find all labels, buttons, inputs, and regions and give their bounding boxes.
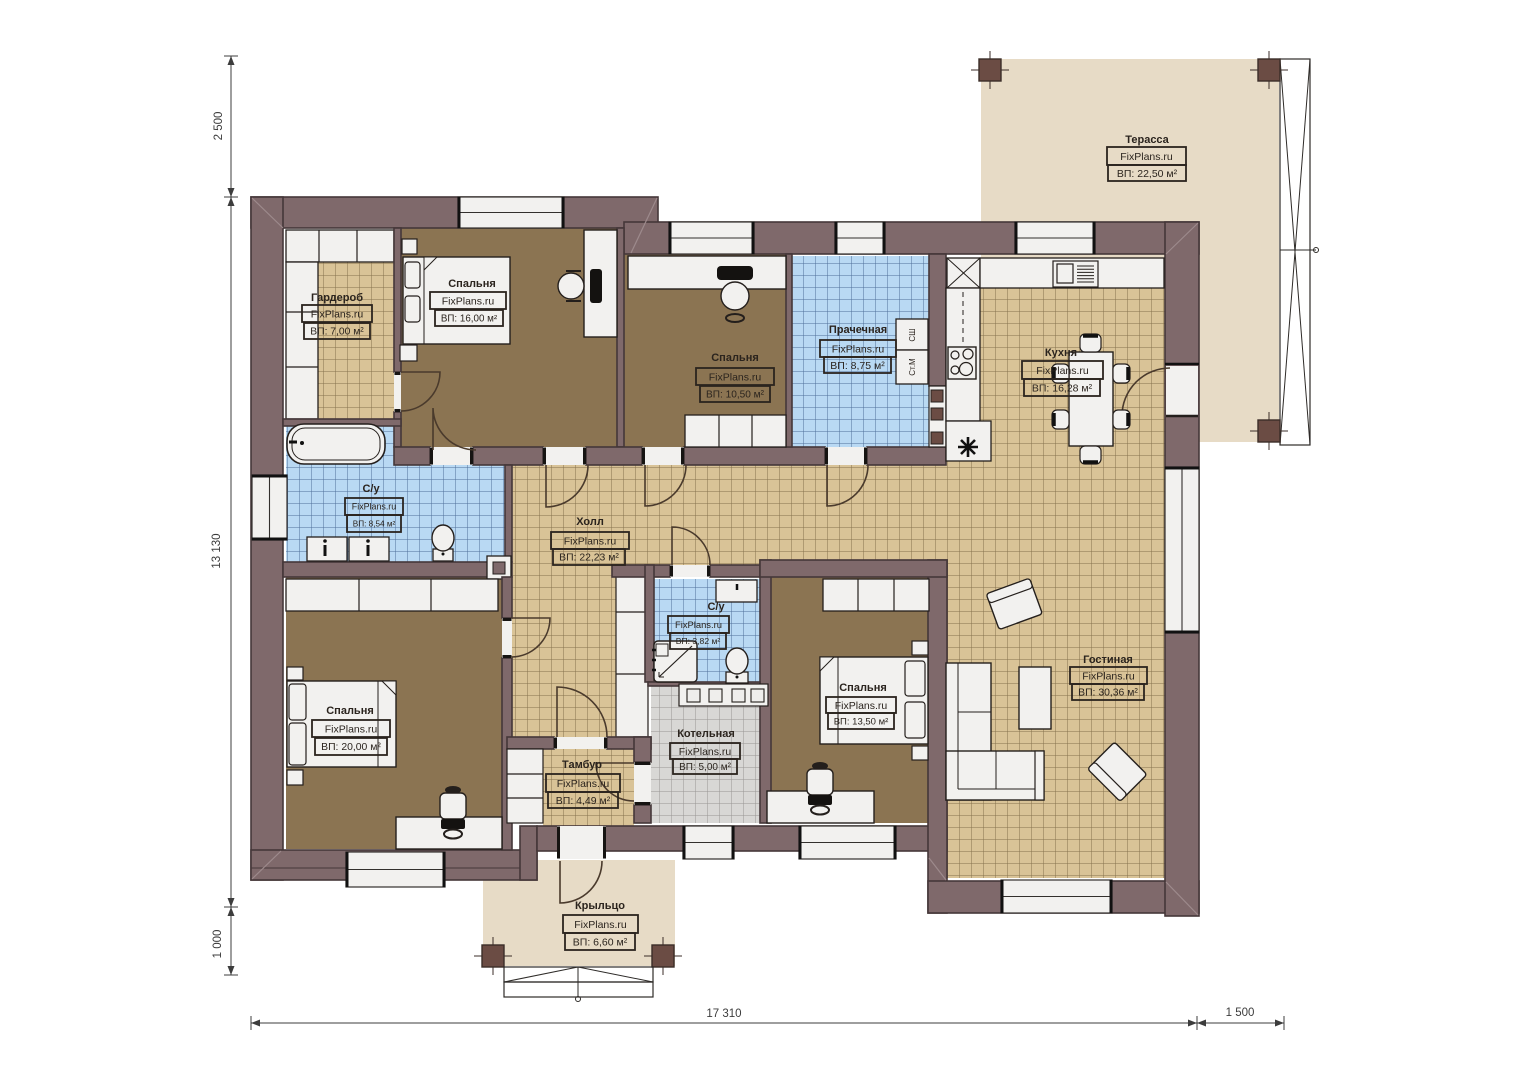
svg-text:ВП: 16,00 м²: ВП: 16,00 м² [441, 314, 498, 325]
svg-text:С/у: С/у [707, 601, 725, 613]
svg-text:FixPlans.ru: FixPlans.ru [557, 778, 610, 790]
svg-text:FixPlans.ru: FixPlans.ru [442, 295, 495, 307]
svg-text:ВП: 7,00 м²: ВП: 7,00 м² [310, 327, 364, 338]
svg-text:Спальня: Спальня [448, 278, 496, 290]
svg-text:Спальня: Спальня [326, 705, 374, 717]
svg-text:FixPlans.ru: FixPlans.ru [1120, 151, 1173, 163]
svg-text:Тамбур: Тамбур [562, 759, 602, 771]
svg-text:ВП: 30,36 м²: ВП: 30,36 м² [1078, 688, 1138, 699]
svg-text:FixPlans.ru: FixPlans.ru [325, 723, 378, 735]
svg-text:ВП: 8,54 м²: ВП: 8,54 м² [353, 519, 396, 528]
svg-text:FixPlans.ru: FixPlans.ru [574, 919, 627, 931]
svg-text:FixPlans.ru: FixPlans.ru [564, 535, 617, 547]
svg-text:Кухня: Кухня [1045, 347, 1077, 359]
svg-text:ВП: 22,23 м²: ВП: 22,23 м² [559, 553, 619, 564]
svg-text:FixPlans.ru: FixPlans.ru [311, 308, 364, 320]
svg-text:13 130: 13 130 [211, 533, 223, 568]
svg-text:ВП: 16,28 м²: ВП: 16,28 м² [1032, 382, 1093, 394]
svg-text:Гостиная: Гостиная [1083, 654, 1133, 666]
svg-text:Терасса: Терасса [1125, 134, 1169, 146]
svg-text:Крыльцо: Крыльцо [575, 900, 625, 912]
svg-text:FixPlans.ru: FixPlans.ru [675, 619, 722, 630]
svg-text:FixPlans.ru: FixPlans.ru [679, 746, 732, 758]
svg-text:FixPlans.ru: FixPlans.ru [835, 700, 888, 712]
svg-text:Гардероб: Гардероб [311, 292, 363, 304]
svg-text:FixPlans.ru: FixPlans.ru [709, 371, 762, 383]
svg-text:FixPlans.ru: FixPlans.ru [1082, 670, 1135, 682]
svg-text:1 500: 1 500 [1226, 1007, 1255, 1019]
svg-text:Котельная: Котельная [677, 728, 735, 740]
svg-text:Спальня: Спальня [839, 682, 887, 694]
svg-text:2 500: 2 500 [213, 112, 225, 141]
svg-text:ВП: 5,00 м²: ВП: 5,00 м² [679, 762, 732, 773]
svg-text:FixPlans.ru: FixPlans.ru [1036, 365, 1089, 377]
svg-text:ВП: 13,50 м²: ВП: 13,50 м² [834, 716, 889, 727]
svg-text:17 310: 17 310 [706, 1008, 741, 1020]
svg-text:ВП: 4,49 м²: ВП: 4,49 м² [556, 795, 611, 807]
svg-text:ВП: 6,60 м²: ВП: 6,60 м² [573, 936, 628, 948]
svg-text:Холл: Холл [576, 516, 604, 528]
svg-text:СШ: СШ [908, 328, 917, 341]
svg-text:Прачечная: Прачечная [829, 324, 887, 336]
svg-text:ВП: 22,50 м²: ВП: 22,50 м² [1117, 168, 1178, 180]
svg-text:ВП: 10,50 м²: ВП: 10,50 м² [706, 390, 765, 401]
svg-text:ВП: 20,00 м²: ВП: 20,00 м² [321, 742, 381, 753]
svg-text:С/у: С/у [362, 483, 380, 495]
svg-text:1 000: 1 000 [212, 930, 224, 959]
svg-text:ВП: 3,82 м²: ВП: 3,82 м² [676, 636, 721, 646]
svg-text:ВП: 8,75 м²: ВП: 8,75 м² [830, 360, 885, 372]
svg-text:FixPlans.ru: FixPlans.ru [832, 343, 885, 355]
svg-text:FixPlans.ru: FixPlans.ru [352, 502, 396, 512]
svg-text:Спальня: Спальня [711, 352, 759, 364]
svg-text:Ст.М: Ст.М [908, 358, 917, 376]
